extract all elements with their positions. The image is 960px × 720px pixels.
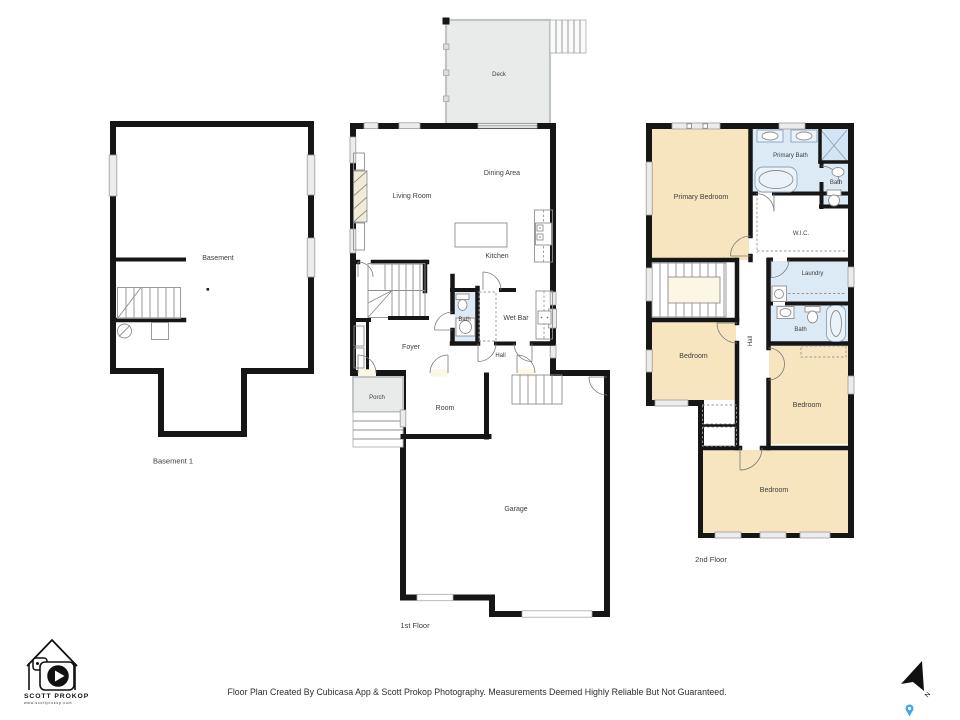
floor-plan-page: Basement Basement 1 Deck [0,0,960,720]
north-label: N [924,691,933,699]
room-label-wic: W.I.C. [793,231,810,237]
room-label-foyer: Foyer [402,344,421,351]
room-label-dining-area: Dining Area [484,170,520,177]
deck-post [443,18,450,25]
window [779,123,805,129]
window [400,410,406,427]
window [350,229,356,253]
upper-stairs [652,263,726,317]
room-label-porch: Porch [369,395,385,401]
garage-door-panel [417,594,453,600]
room-label-laundry: Laundry [802,271,824,277]
door-arc [435,312,453,330]
room-label-living-room: Living Room [393,193,432,200]
window [350,137,356,163]
north-compass: N [901,661,932,717]
room-label-bath: Bath [794,327,806,333]
window [848,267,854,287]
room-label-basement: Basement [202,255,234,262]
room-label-garage: Garage [504,506,527,513]
room-label-deck: Deck [492,72,507,78]
window [800,532,830,538]
window [646,268,652,301]
basement-utility-symbol [118,288,210,340]
window-tick [687,124,692,129]
porch-steps [353,412,403,447]
window [760,532,786,538]
disclaimer-text: Floor Plan Created By Cubicasa App & Sco… [227,687,726,697]
window [364,123,378,129]
door-arc [756,194,774,212]
window [646,350,652,372]
kitchen-island [455,223,507,247]
bedroom-right-area [769,346,848,444]
north-arrow-icon [901,661,924,691]
window [550,292,556,305]
room-label-primary-bedroom: Primary Bedroom [674,194,729,201]
door-arc [478,344,496,362]
window [672,123,720,129]
bedroom-left-area [652,321,736,400]
room-label-bedroom-bottom: Bedroom [760,487,789,494]
garage-stairs [512,375,562,404]
basement-plan: Basement Basement 1 [109,124,315,466]
pantry-closet [479,292,496,341]
deck-post [444,70,450,76]
room-label-kitchen: Kitchen [485,253,508,260]
floor-label-first: 1st Floor [400,621,430,630]
main-stairs [368,264,425,318]
first-floor-plan: Deck [350,18,607,631]
room-label-primary-bath: Primary Bath [773,153,808,159]
window [848,376,854,394]
closet [703,405,737,424]
room-label-wet-bar: Wet Bar [503,315,529,322]
shower [820,129,848,162]
window [646,162,652,215]
room-label-ensuite-bath: Bath [830,180,842,186]
location-pin-icon [906,705,914,717]
window [550,345,556,358]
room-label-hall: Hall [748,336,754,346]
kitchen-counter [535,210,553,262]
bathtub [755,167,797,192]
floor-label-second: 2nd Floor [695,555,727,564]
room-label-bedroom-right: Bedroom [793,402,822,409]
window-tick [703,124,708,129]
camera-icon [33,658,74,690]
basement-window [307,155,315,195]
logo-website: www.scottprokop.com [24,701,72,705]
basement-stairs [118,288,181,319]
door-arc [483,272,501,290]
basement-window [307,238,315,277]
basement-window [109,155,117,196]
room-label-bedroom-left: Bedroom [679,353,708,360]
window [399,123,420,129]
logo-name: SCOTT PROKOP [24,693,89,700]
deck-post [444,96,450,102]
deck-post [444,44,450,50]
room-label-hall: Hall [495,353,505,359]
window [655,400,688,406]
room-label-bath: Bath [458,317,470,323]
first-floor-footprint [353,126,607,614]
garage-door-panel [522,611,592,617]
photographer-logo: SCOTT PROKOP www.scottprokop.com [24,640,89,705]
second-floor-plan: Primary Bedroom Primary Bath Bath W.I.C.… [646,123,854,564]
window [715,532,741,538]
closet [703,427,737,446]
floor-label-basement: Basement 1 [153,457,193,466]
room-label-room: Room [436,405,455,412]
deck-stairs [550,20,586,53]
basement-footprint [113,124,311,434]
